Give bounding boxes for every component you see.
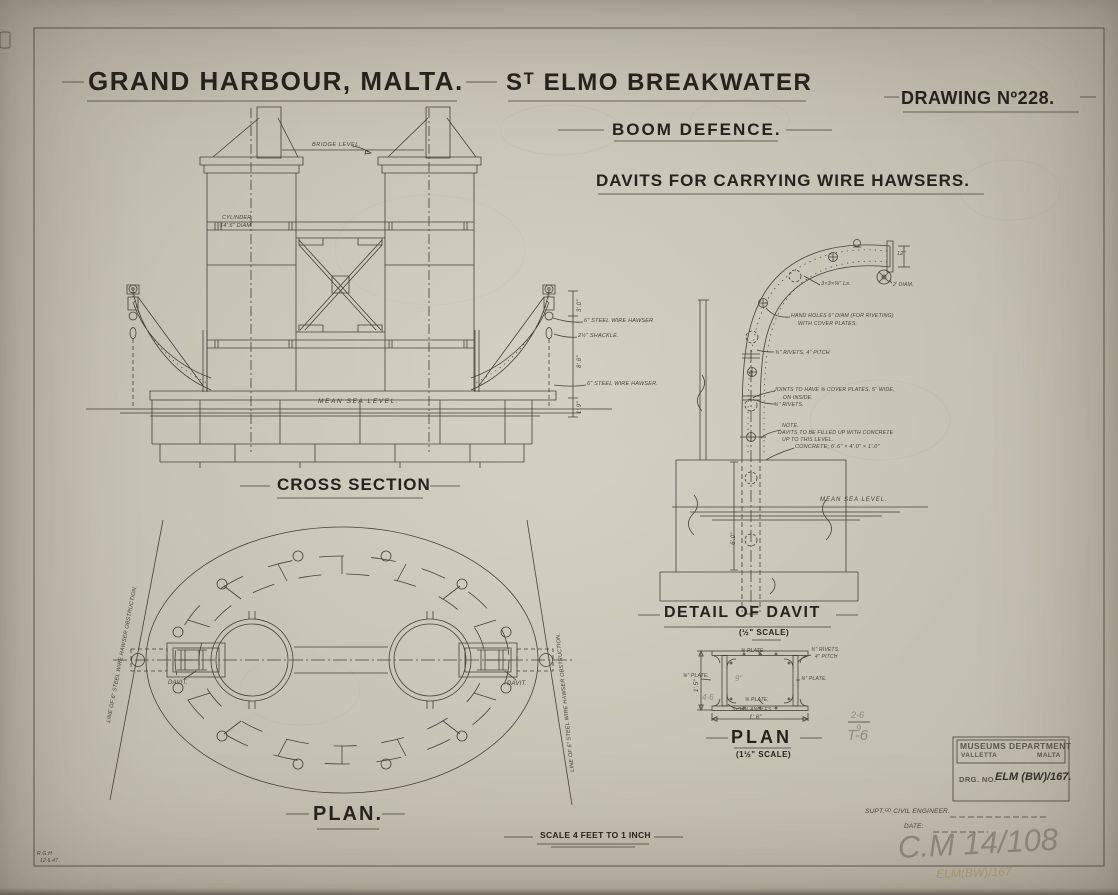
draughtsman-initials: R.G.H <box>37 851 52 857</box>
hand-holes-label-1: HAND HOLES 6" DIAM (FOR RIVETING) <box>791 313 894 319</box>
drawing-number: DRAWING Nº228. <box>901 88 1055 109</box>
pencil-mark-9: 9" <box>735 674 742 683</box>
joints-label-2: ON INSIDE. <box>783 395 813 401</box>
joints-label-1: JOINTS TO HAVE ⅜ COVER PLATES, 5" WIDE, <box>774 387 895 393</box>
detail-scale-label: (½" SCALE) <box>739 628 789 637</box>
mean-sea-level-detail-label: MEAN SEA LEVEL. <box>820 497 888 503</box>
note-label-2: DAVITS TO BE FILLED UP WITH CONCRETE <box>778 430 893 436</box>
stamp-department: MUSEUMS DEPARTMENT <box>960 741 1071 751</box>
detail-dim-12: 12" <box>897 251 906 257</box>
stamp-country: MALTA <box>1037 752 1061 759</box>
subtitle-davits: DAVITS FOR CARRYING WIRE HAWSERS. <box>596 171 970 191</box>
rivets-label: ¾" RIVETS. 4" PITCH <box>775 350 830 356</box>
dim-1ft9: 1'.9" <box>577 401 583 414</box>
stamp-city: VALLETTA <box>961 752 997 759</box>
red-edge-tag <box>0 32 10 48</box>
angles-label: 3×3×⅜" Ls. <box>821 281 851 287</box>
concrete-label: CONCRETE; 6'.6" × 4'.0" × 1'.0" <box>795 444 880 450</box>
note-label-1: NOTE. <box>782 423 799 429</box>
angles-bottom-label: 3×3×⅜ ANGLES. <box>732 707 773 713</box>
bridge-level-label: BRIDGE LEVEL. <box>312 142 361 148</box>
stamp-drg-no-value: ELM (BW)/167. <box>995 771 1071 783</box>
page-title: GRAND HARBOUR, MALTA. <box>88 66 464 97</box>
shackle-label: 2½" SHACKLE. <box>578 333 619 339</box>
dim-1ft6: 1'.6" <box>749 715 762 721</box>
hawser-upper-label: 6" STEEL WIRE HAWSER <box>584 318 653 324</box>
sheet-border <box>0 28 1104 866</box>
davit-right-label: DAVIT. <box>507 681 527 687</box>
draughtsman-date: 12.6.47 <box>40 858 58 864</box>
scale-note: SCALE 4 FEET TO 1 INCH <box>540 830 651 840</box>
joints-label-3: ¾" RIVETS. <box>774 402 804 408</box>
rivets-label-2: 4" PITCH <box>815 654 838 660</box>
plate-top-label: ⅜ PLATE. <box>741 648 765 654</box>
pencil-mark-t6: T-6 <box>847 727 868 744</box>
pencil-fraction-top: 2-6 <box>851 710 864 720</box>
drawing-linework <box>0 0 1118 895</box>
date-label: DATE: <box>904 823 924 830</box>
subtitle-boom-defence: BOOM DEFENCE. <box>612 120 782 140</box>
dim-3ft: 3'.0" <box>577 299 583 312</box>
drawing-sheet: GRAND HARBOUR, MALTA. Sᵀ ELMO BREAKWATER… <box>0 0 1118 895</box>
mean-sea-level-label: MEAN SEA LEVEL. <box>318 398 399 405</box>
sheave-label: 2' DIAM. <box>893 282 914 288</box>
dim-6ft: 6'.0" <box>731 532 737 545</box>
cylinder-label-line1: CYLINDER <box>222 215 251 221</box>
engineer-signature-label: SUPT.ᴳᴰ CIVIL ENGINEER. <box>865 808 950 815</box>
cylinder-label-line2: 14'.6" DIAM. <box>220 223 253 229</box>
plan-title: PLAN. <box>313 803 383 826</box>
section-plan-scale: (1½" SCALE) <box>736 750 791 759</box>
plan-linework <box>110 520 572 805</box>
note-label-3: UP TO THIS LEVEL. <box>782 437 833 443</box>
plate-bottom-label: ⅜ PLATE. <box>745 697 769 703</box>
hand-holes-label-2: WITH COVER PLATES. <box>798 321 857 327</box>
dim-8ft6: 8'.6" <box>577 355 583 368</box>
pencil-elm-reference: ELM(BW)/167 <box>936 864 1012 881</box>
pencil-mark-46: 4-6 <box>702 693 714 702</box>
cross-section-linework <box>86 107 612 468</box>
scan-edge-shadow <box>0 888 1118 895</box>
rivets-label-1: ¾" RIVETS. <box>811 647 840 653</box>
hawser-lower-label: 6" STEEL WIRE HAWSER. <box>587 381 658 387</box>
section-plan-title: PLAN <box>731 727 792 748</box>
cross-section-title: CROSS SECTION <box>277 475 431 495</box>
plate-right-label: ⅜" PLATE. <box>801 676 827 682</box>
page-title-breakwater: Sᵀ ELMO BREAKWATER <box>506 69 812 97</box>
title-rules <box>62 82 1096 847</box>
stamp-drg-no-label: DRG. NO. <box>959 775 996 784</box>
detail-of-davit-title: DETAIL OF DAVIT <box>664 604 821 622</box>
dim-1ft5: 1'.5" <box>694 679 700 692</box>
davit-left-label: DAVIT. <box>168 680 188 686</box>
